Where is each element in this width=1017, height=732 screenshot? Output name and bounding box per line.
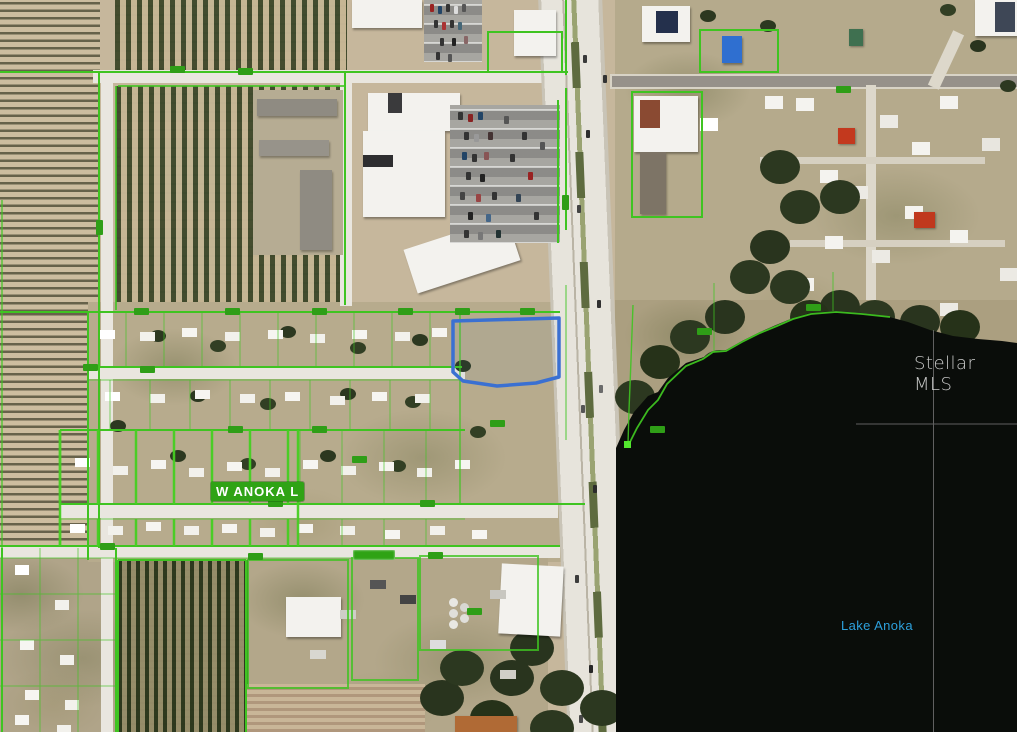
lot-lines-fine bbox=[0, 312, 430, 732]
street-label-w-anoka: W ANOKA L bbox=[211, 482, 304, 501]
mls-watermark: Stellar MLS bbox=[914, 353, 1017, 395]
lake-name-label: Lake Anoka bbox=[841, 618, 913, 633]
satellite-map[interactable]: W ANOKA L Lake Anoka Stellar MLS bbox=[0, 0, 1017, 732]
street-label-small bbox=[353, 550, 395, 560]
selected-parcel-outline[interactable] bbox=[453, 318, 559, 386]
